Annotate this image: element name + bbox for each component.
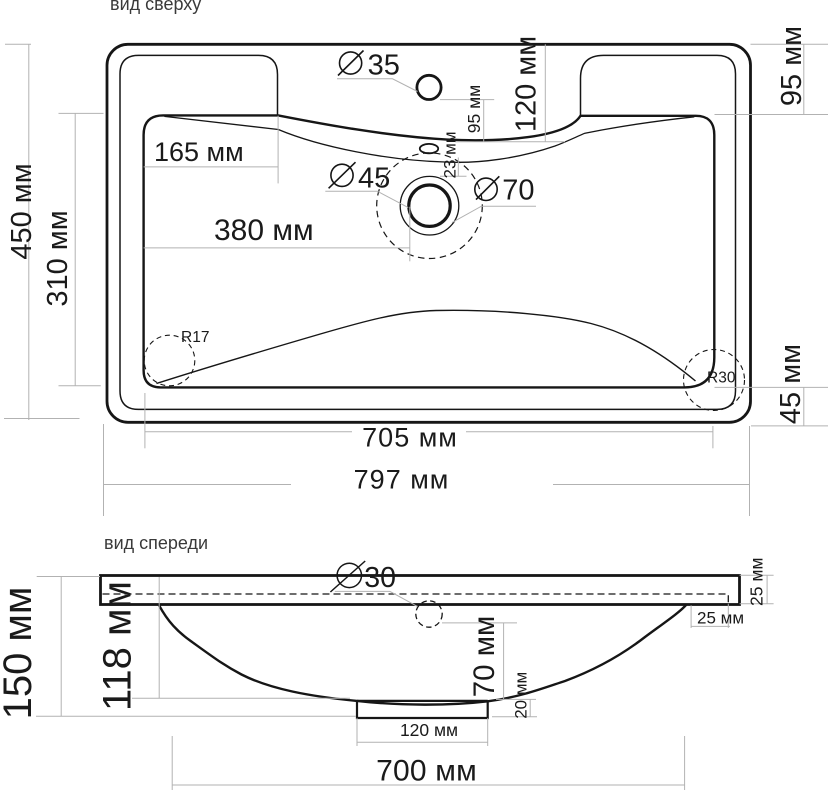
svg-text:120 мм: 120 мм: [511, 36, 543, 132]
svg-text:95 мм: 95 мм: [464, 85, 484, 133]
svg-text:95 мм: 95 мм: [776, 26, 808, 106]
svg-text:30: 30: [364, 562, 396, 594]
svg-text:25 мм: 25 мм: [697, 609, 744, 628]
svg-text:310 мм: 310 мм: [42, 210, 74, 306]
svg-text:797 мм: 797 мм: [354, 465, 450, 495]
svg-text:380 мм: 380 мм: [214, 214, 314, 247]
svg-text:120 мм: 120 мм: [400, 720, 458, 740]
svg-text:R30: R30: [707, 370, 736, 387]
svg-text:R17: R17: [181, 329, 209, 346]
svg-text:165 мм: 165 мм: [154, 137, 244, 167]
svg-text:23 мм: 23 мм: [441, 131, 460, 178]
svg-text:70: 70: [502, 175, 534, 207]
svg-text:700 мм: 700 мм: [376, 754, 477, 787]
svg-text:вид спереди: вид спереди: [104, 533, 208, 553]
svg-text:70 мм: 70 мм: [468, 616, 501, 698]
svg-text:45: 45: [358, 162, 390, 194]
svg-text:20 мм: 20 мм: [511, 672, 530, 719]
svg-text:вид сверху: вид сверху: [110, 0, 201, 14]
svg-text:35: 35: [368, 49, 400, 81]
svg-text:450 мм: 450 мм: [6, 163, 38, 259]
svg-text:705 мм: 705 мм: [362, 422, 458, 452]
svg-text:150 мм: 150 мм: [0, 587, 40, 720]
svg-text:45 мм: 45 мм: [775, 344, 807, 424]
svg-text:25 мм: 25 мм: [746, 558, 766, 606]
svg-text:118 мм: 118 мм: [96, 581, 140, 711]
